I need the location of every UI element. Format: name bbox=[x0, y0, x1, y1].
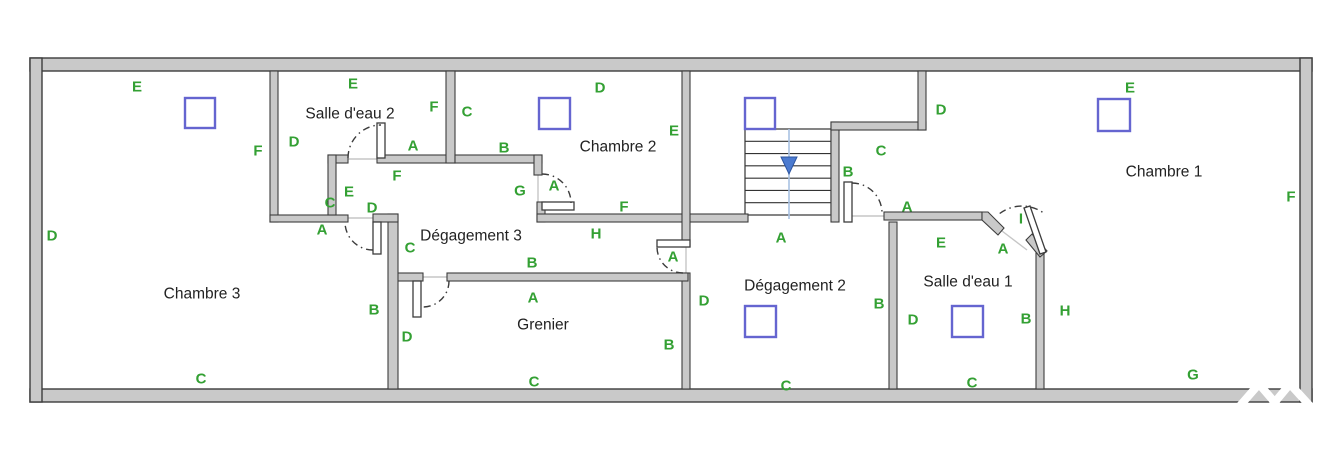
wall-label-f: F bbox=[1286, 189, 1295, 206]
wall-label-d: D bbox=[595, 80, 606, 97]
room-label-salle-d-eau-1: Salle d'eau 1 bbox=[923, 274, 1012, 291]
inner-wall bbox=[884, 212, 982, 220]
wall-label-b: B bbox=[1021, 311, 1032, 328]
wall-label-d: D bbox=[402, 329, 413, 346]
wall-label-b: B bbox=[527, 255, 538, 272]
outer-wall bbox=[30, 389, 1312, 402]
skylight-icon bbox=[745, 98, 775, 129]
staircase bbox=[745, 129, 831, 219]
inner-wall bbox=[534, 155, 542, 175]
inner-wall bbox=[447, 273, 688, 281]
inner-wall bbox=[682, 273, 690, 389]
wall-label-f: F bbox=[429, 99, 438, 116]
inner-wall bbox=[377, 155, 455, 163]
skylight-icon bbox=[185, 98, 215, 128]
room-label-salle-d-eau-2: Salle d'eau 2 bbox=[305, 106, 394, 123]
wall-label-b: B bbox=[843, 164, 854, 181]
room-label-d-gagement-3: Dégagement 3 bbox=[420, 228, 522, 245]
room-label-chambre-3: Chambre 3 bbox=[164, 286, 241, 303]
wall-label-c: C bbox=[462, 104, 473, 121]
inner-wall bbox=[831, 122, 926, 130]
wall-label-c: C bbox=[967, 375, 978, 392]
inner-wall bbox=[388, 214, 398, 389]
outer-wall bbox=[30, 58, 42, 402]
wall-label-a: A bbox=[902, 199, 913, 216]
room-label-chambre-1: Chambre 1 bbox=[1126, 164, 1203, 181]
floor-plan-svg: Chambre 3Salle d'eau 2Chambre 2Chambre 1… bbox=[0, 0, 1328, 472]
outer-wall bbox=[30, 58, 1312, 71]
wall-label-a: A bbox=[408, 138, 419, 155]
wall-label-e: E bbox=[344, 184, 354, 201]
wall-label-a: A bbox=[317, 222, 328, 239]
wall-label-a: A bbox=[549, 178, 560, 195]
wall-label-a: A bbox=[998, 241, 1009, 258]
outer-wall bbox=[1300, 58, 1312, 402]
wall-label-a: A bbox=[528, 290, 539, 307]
wall-label-c: C bbox=[196, 371, 207, 388]
skylight-icon bbox=[539, 98, 570, 129]
wall-label-b: B bbox=[664, 337, 675, 354]
wall-label-a: A bbox=[776, 230, 787, 247]
wall-label-e: E bbox=[936, 235, 946, 252]
wall-label-d: D bbox=[47, 228, 58, 245]
wall-label-c: C bbox=[781, 378, 792, 395]
wall-label-b: B bbox=[874, 296, 885, 313]
room-label-d-gagement-2: Dégagement 2 bbox=[744, 278, 846, 295]
wall-label-f: F bbox=[253, 143, 262, 160]
inner-wall bbox=[831, 122, 839, 222]
wall-label-a: A bbox=[668, 249, 679, 266]
wall-label-d: D bbox=[936, 102, 947, 119]
wall-label-c: C bbox=[405, 240, 416, 257]
wall-label-d: D bbox=[908, 312, 919, 329]
room-label-grenier: Grenier bbox=[517, 317, 569, 334]
wall-label-c: C bbox=[529, 374, 540, 391]
inner-wall bbox=[682, 71, 690, 247]
wall-label-e: E bbox=[132, 79, 142, 96]
inner-wall bbox=[537, 214, 748, 222]
inner-wall bbox=[270, 71, 278, 222]
door-leaf bbox=[373, 222, 381, 254]
floor-plan-page: Chambre 3Salle d'eau 2Chambre 2Chambre 1… bbox=[0, 0, 1328, 472]
wall-label-e: E bbox=[669, 123, 679, 140]
inner-wall bbox=[270, 215, 348, 222]
room-label-chambre-2: Chambre 2 bbox=[580, 139, 657, 156]
door-leaf bbox=[377, 123, 385, 158]
wall-label-b: B bbox=[369, 302, 380, 319]
wall-label-c: C bbox=[325, 195, 336, 212]
wall-label-f: F bbox=[392, 168, 401, 185]
inner-wall bbox=[1036, 253, 1044, 389]
wall-label-h: H bbox=[591, 226, 602, 243]
wall-label-b: B bbox=[499, 140, 510, 157]
door-leaf bbox=[844, 182, 852, 222]
door-leaf bbox=[657, 240, 690, 247]
skylight-icon bbox=[1098, 99, 1130, 131]
wall-label-i: I bbox=[1019, 211, 1023, 228]
wall-label-d: D bbox=[289, 134, 300, 151]
wall-label-e: E bbox=[1125, 80, 1135, 97]
wall-label-f: F bbox=[619, 199, 628, 216]
skylight-icon bbox=[952, 306, 983, 337]
inner-wall bbox=[889, 222, 897, 389]
wall-label-d: D bbox=[699, 293, 710, 310]
door-leaf bbox=[542, 202, 574, 210]
skylight-icon bbox=[745, 306, 776, 337]
inner-wall bbox=[446, 71, 455, 163]
wall-label-g: G bbox=[1187, 367, 1199, 384]
wall-label-g: G bbox=[514, 183, 526, 200]
wall-label-h: H bbox=[1060, 303, 1071, 320]
wall-label-d: D bbox=[367, 200, 378, 217]
wall-label-e: E bbox=[348, 76, 358, 93]
door-leaf bbox=[413, 281, 421, 317]
wall-label-c: C bbox=[876, 143, 887, 160]
inner-wall bbox=[918, 71, 926, 130]
